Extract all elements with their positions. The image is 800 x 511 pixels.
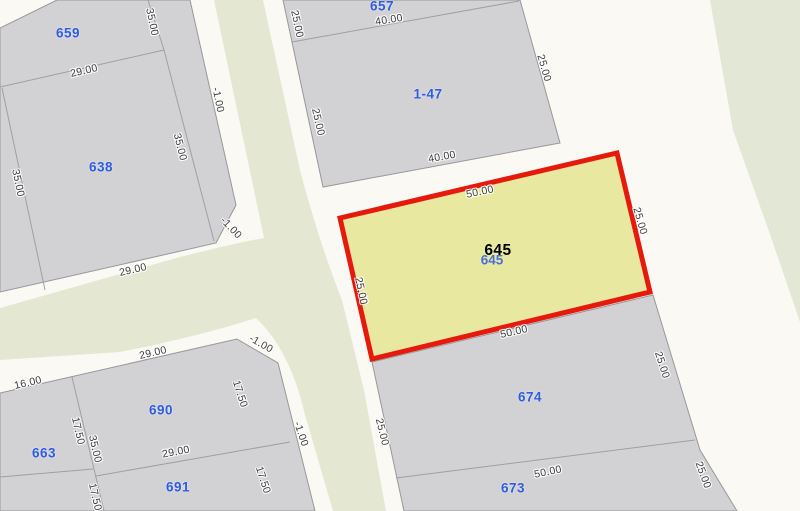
parcel-map[interactable]: 35.00 29.00 -1.00 35.00 35.00 29.00 -1.0… <box>0 0 800 511</box>
map-canvas[interactable] <box>0 0 800 511</box>
